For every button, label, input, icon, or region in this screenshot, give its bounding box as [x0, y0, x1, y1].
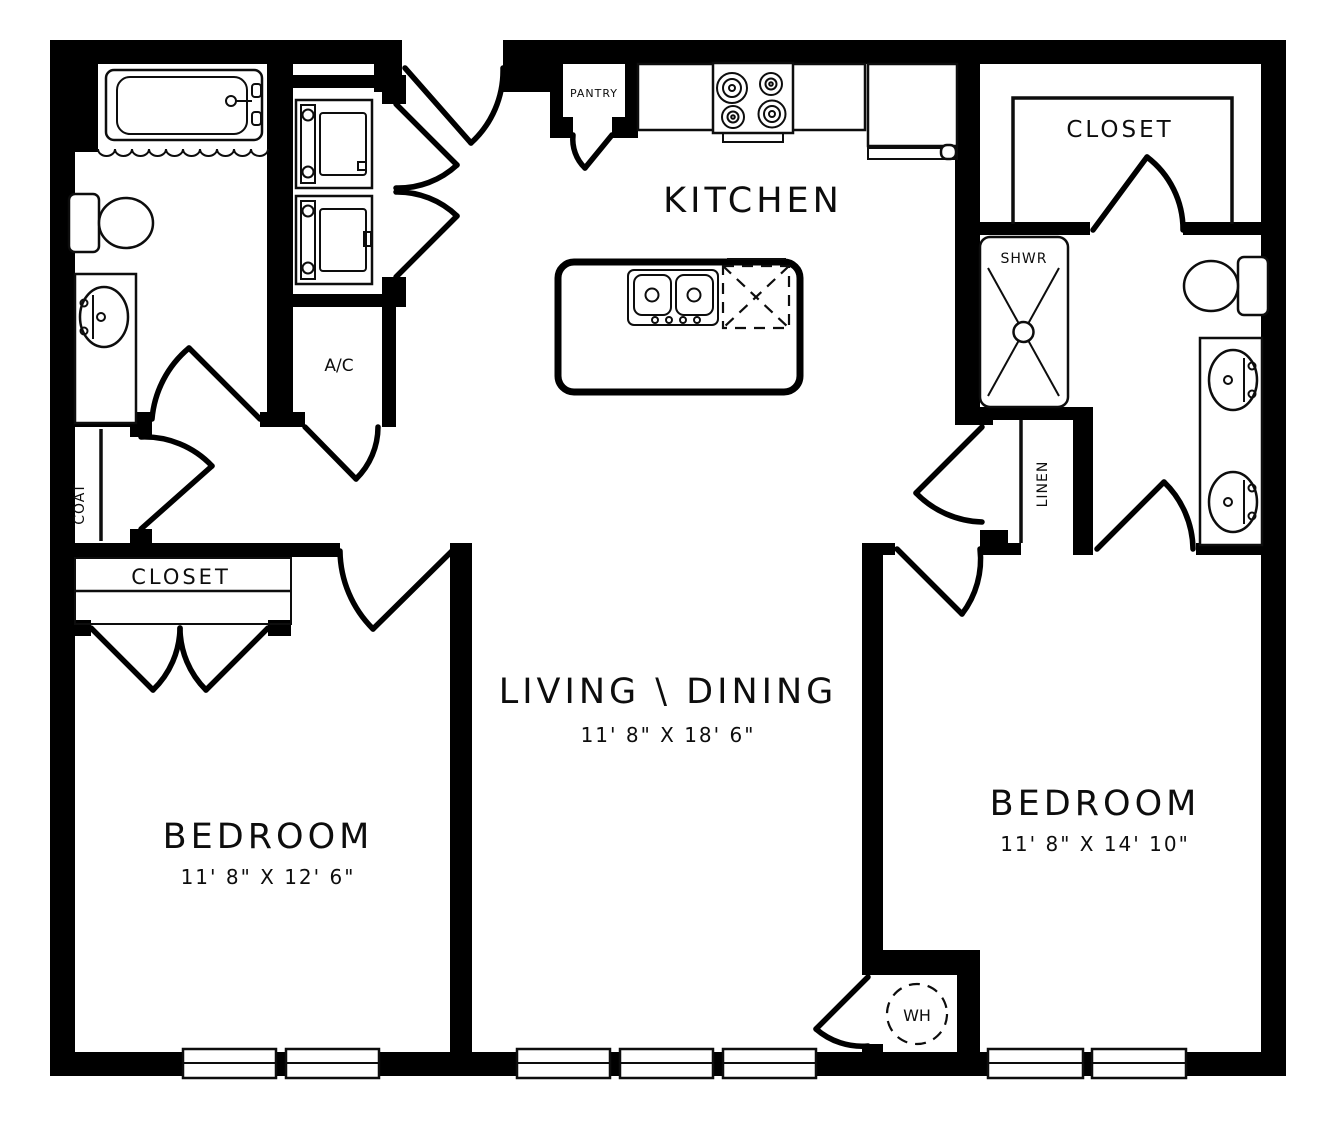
floor-plan-page: KITCHEN LIVING \ DINING 11' 8" X 18' 6" … [0, 0, 1336, 1130]
ac-label: A/C [324, 356, 353, 376]
window [988, 1049, 1083, 1078]
bedroom-right-door [897, 549, 981, 614]
shower-label: SHWR [1001, 251, 1048, 267]
walkin-closet-door [1093, 157, 1183, 230]
floor-plan: KITCHEN LIVING \ DINING 11' 8" X 18' 6" … [0, 0, 1336, 1130]
shower-curtain [98, 149, 268, 156]
pantry-label: PANTRY [570, 87, 618, 100]
laundry-doors [396, 104, 457, 277]
window [286, 1049, 379, 1078]
bedroom-closet-label: CLOSET [131, 565, 231, 589]
bedroom-bath-corridor-door [1097, 482, 1193, 549]
bathroom-right-door [916, 427, 982, 522]
sink [1209, 350, 1257, 410]
washer [296, 100, 372, 188]
water-heater-label: WH [903, 1006, 931, 1025]
ac-closet-door [305, 427, 378, 479]
bedroom-left-label: BEDROOM [163, 817, 374, 857]
vanity-sink [75, 274, 136, 423]
bedroom-right-dims: 11' 8" X 14' 10" [1000, 832, 1190, 856]
window [183, 1049, 276, 1078]
bedroom-left-dims: 11' 8" X 12' 6" [181, 865, 356, 889]
walkin-closet-label: CLOSET [1066, 117, 1173, 143]
kitchen-label: KITCHEN [663, 181, 843, 221]
windows [183, 1049, 1186, 1078]
window [1092, 1049, 1186, 1078]
coat-closet-label: COAT [72, 483, 88, 525]
entry-door [405, 68, 503, 143]
living-dining-dims: 11' 8" X 18' 6" [581, 723, 756, 747]
hall-door [141, 437, 212, 529]
bedroom-right-label: BEDROOM [990, 784, 1201, 824]
window [620, 1049, 713, 1078]
double-vanity [1200, 338, 1262, 545]
bedroom-closet-doors [91, 628, 268, 690]
stove [713, 63, 793, 142]
kitchen-island [558, 259, 800, 392]
living-dining-label: LIVING \ DINING [499, 672, 838, 712]
water-heater-door [816, 977, 868, 1046]
toilet [69, 194, 153, 252]
bedroom-left-door [340, 551, 452, 629]
window [723, 1049, 816, 1078]
bathtub [106, 70, 262, 140]
toilet [1184, 257, 1268, 315]
dryer [296, 196, 372, 284]
refrigerator [868, 64, 957, 159]
linen-closet-label: LINEN [1035, 461, 1051, 508]
sink [1209, 472, 1257, 532]
window [517, 1049, 610, 1078]
bathroom-left-door [152, 348, 260, 419]
pantry-door [573, 135, 612, 168]
